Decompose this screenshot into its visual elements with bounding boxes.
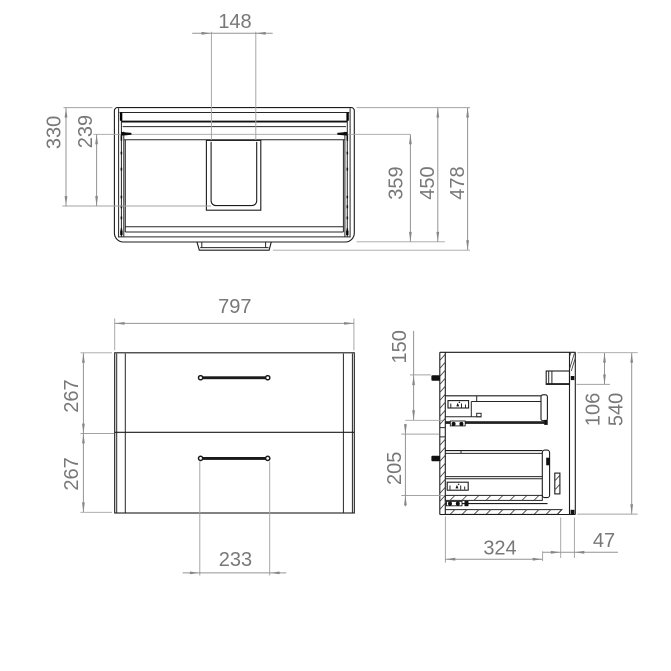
svg-text:106: 106 bbox=[582, 393, 604, 426]
svg-text:150: 150 bbox=[389, 330, 411, 363]
svg-text:330: 330 bbox=[43, 116, 65, 149]
svg-text:478: 478 bbox=[447, 166, 469, 199]
svg-text:267: 267 bbox=[61, 379, 83, 412]
svg-text:233: 233 bbox=[219, 549, 252, 571]
svg-text:148: 148 bbox=[218, 11, 251, 33]
svg-text:797: 797 bbox=[218, 296, 251, 318]
svg-text:205: 205 bbox=[384, 452, 406, 485]
svg-text:239: 239 bbox=[75, 115, 97, 148]
svg-text:540: 540 bbox=[606, 393, 628, 426]
svg-text:267: 267 bbox=[61, 457, 83, 490]
svg-text:359: 359 bbox=[385, 166, 407, 199]
svg-text:324: 324 bbox=[483, 538, 516, 560]
svg-text:47: 47 bbox=[593, 530, 615, 552]
svg-text:450: 450 bbox=[417, 166, 439, 199]
